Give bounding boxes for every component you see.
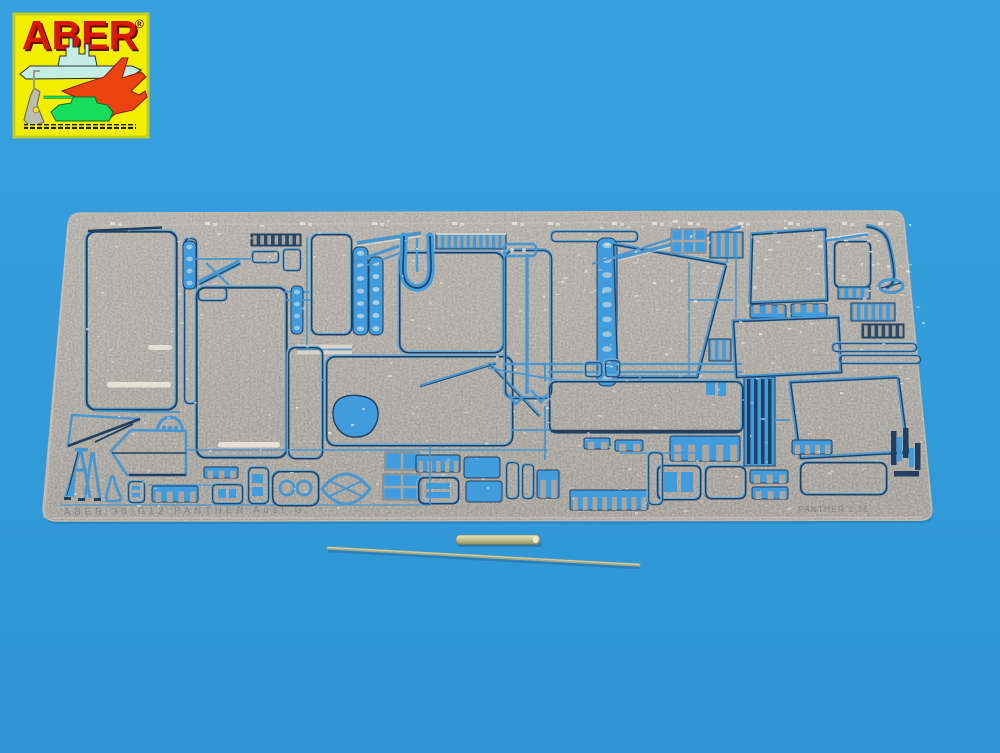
svg-text:ABER: ABER: [22, 12, 138, 58]
svg-text:PANTHER 1:35: PANTHER 1:35: [798, 504, 869, 514]
svg-text:®: ®: [135, 17, 144, 31]
